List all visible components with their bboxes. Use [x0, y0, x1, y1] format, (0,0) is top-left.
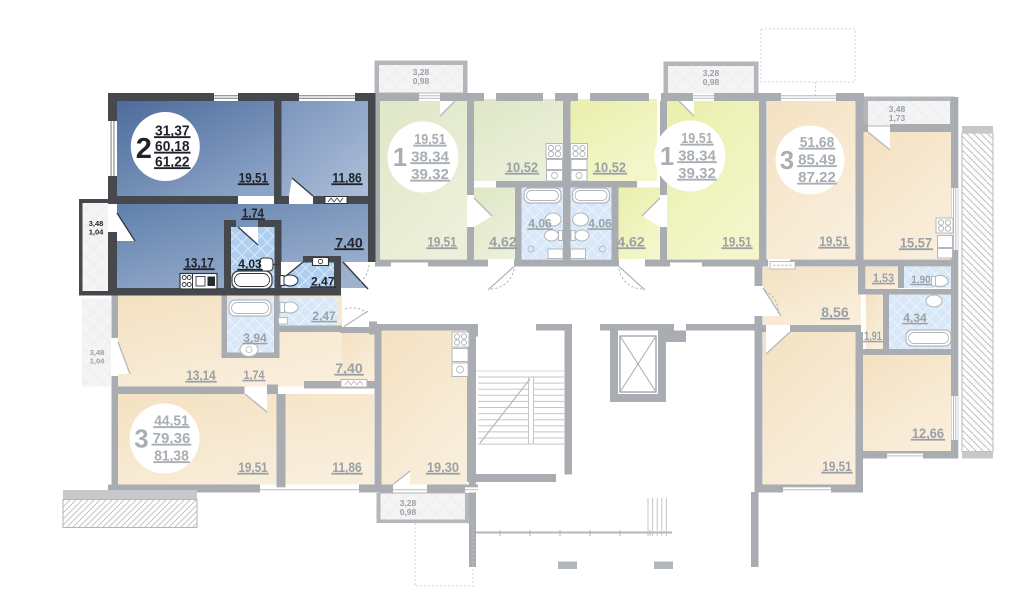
- svg-text:0,98: 0,98: [400, 507, 417, 517]
- svg-text:1,04: 1,04: [90, 357, 105, 366]
- svg-text:10,52: 10,52: [506, 159, 538, 175]
- svg-text:1,73: 1,73: [889, 113, 906, 123]
- svg-text:1: 1: [393, 144, 407, 172]
- svg-text:1: 1: [660, 143, 674, 171]
- svg-text:12,66: 12,66: [912, 425, 944, 441]
- svg-text:8,56: 8,56: [821, 304, 849, 320]
- svg-text:7,40: 7,40: [335, 235, 363, 251]
- svg-text:7,40: 7,40: [335, 360, 363, 376]
- svg-text:2: 2: [136, 133, 152, 165]
- svg-text:19,30: 19,30: [427, 459, 459, 475]
- svg-text:19,51: 19,51: [722, 234, 751, 250]
- svg-text:19,51: 19,51: [822, 458, 851, 474]
- svg-text:0,98: 0,98: [703, 77, 720, 87]
- svg-text:11,86: 11,86: [332, 459, 361, 475]
- svg-text:13,17: 13,17: [184, 255, 213, 271]
- svg-text:10,52: 10,52: [594, 159, 626, 175]
- svg-text:19,51: 19,51: [238, 459, 267, 475]
- svg-text:0,98: 0,98: [413, 76, 430, 86]
- svg-text:11,86: 11,86: [332, 170, 361, 186]
- svg-text:4,62: 4,62: [617, 234, 645, 250]
- svg-text:19,51: 19,51: [427, 234, 456, 250]
- svg-text:19,51: 19,51: [239, 170, 268, 186]
- svg-text:15,57: 15,57: [900, 235, 932, 251]
- svg-text:13,14: 13,14: [186, 367, 215, 383]
- svg-text:1,04: 1,04: [89, 228, 104, 237]
- svg-text:4,62: 4,62: [489, 234, 517, 250]
- svg-text:19,51: 19,51: [819, 233, 848, 249]
- svg-text:3: 3: [134, 426, 148, 454]
- svg-text:3: 3: [780, 147, 794, 175]
